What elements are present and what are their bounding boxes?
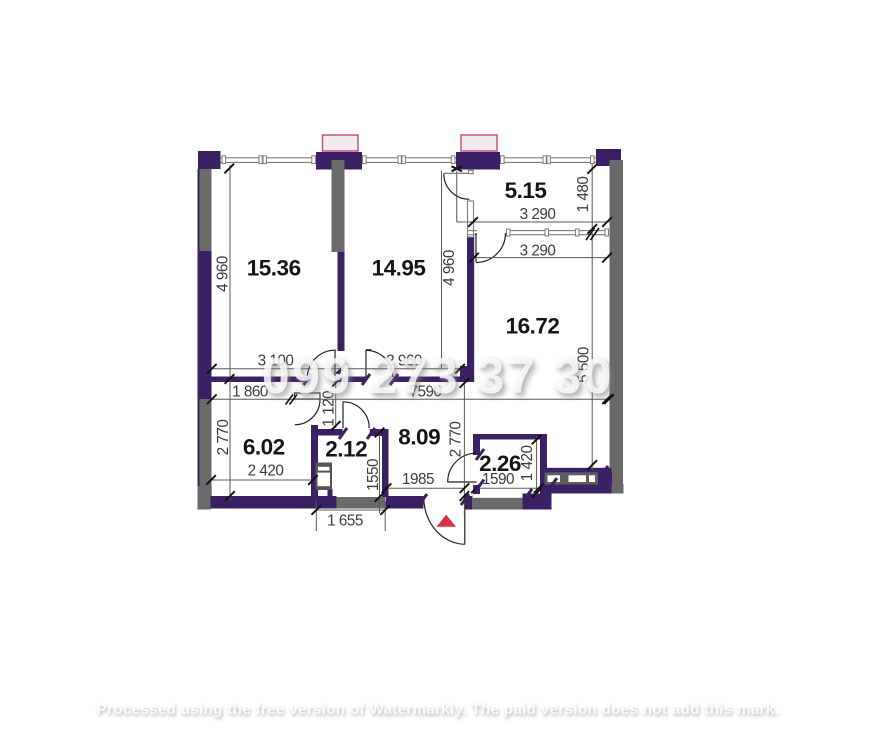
svg-text:1590: 1590	[482, 471, 514, 488]
svg-text:6.02: 6.02	[243, 435, 285, 460]
svg-text:14.95: 14.95	[372, 255, 426, 280]
svg-text:5.15: 5.15	[505, 178, 547, 203]
svg-text:3 290: 3 290	[520, 206, 556, 223]
svg-text:16.72: 16.72	[506, 313, 560, 338]
svg-text:2 770: 2 770	[448, 422, 465, 458]
svg-text:1 655: 1 655	[327, 513, 363, 530]
svg-text:1 420: 1 420	[519, 446, 536, 482]
svg-text:3 290: 3 290	[520, 243, 556, 260]
svg-text:15.36: 15.36	[247, 255, 301, 280]
svg-text:2 770: 2 770	[215, 420, 232, 456]
svg-text:1550: 1550	[365, 459, 382, 491]
svg-text:8.09: 8.09	[398, 425, 440, 450]
svg-text:4 960: 4 960	[441, 250, 458, 286]
svg-text:2.12: 2.12	[325, 437, 367, 462]
svg-text:2 420: 2 420	[248, 462, 284, 479]
svg-text:1985: 1985	[402, 471, 434, 488]
svg-text:1 480: 1 480	[575, 177, 592, 213]
svg-text:4 960: 4 960	[214, 256, 231, 292]
